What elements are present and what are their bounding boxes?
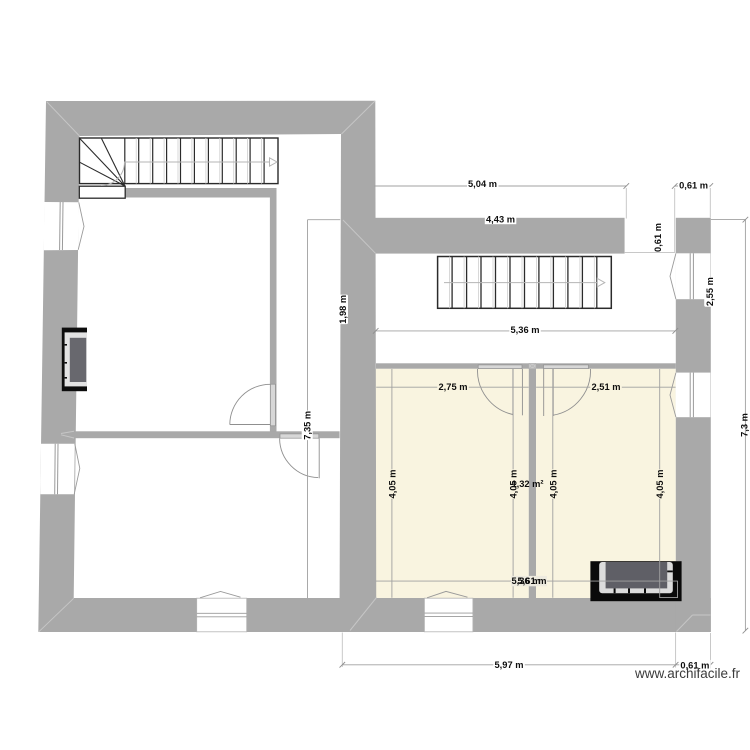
svg-text:7,35 m: 7,35 m bbox=[303, 411, 313, 440]
svg-text:4,05 m: 4,05 m bbox=[548, 470, 558, 499]
svg-text:5,61 m: 5,61 m bbox=[518, 576, 547, 586]
svg-text:1,98 m: 1,98 m bbox=[338, 295, 348, 324]
svg-text:2,55 m: 2,55 m bbox=[705, 277, 715, 306]
svg-text:7,3 m: 7,3 m bbox=[740, 413, 750, 437]
svg-text:4,05 m: 4,05 m bbox=[655, 470, 665, 499]
svg-text:2,75 m: 2,75 m bbox=[439, 382, 468, 392]
svg-text:2,51 m: 2,51 m bbox=[592, 382, 621, 392]
svg-text:5,36 m: 5,36 m bbox=[511, 325, 540, 335]
svg-text:0,61 m: 0,61 m bbox=[679, 180, 708, 190]
svg-text:1,32 m²: 1,32 m² bbox=[511, 479, 543, 489]
svg-text:5,97 m: 5,97 m bbox=[495, 660, 524, 670]
svg-text:4,05 m: 4,05 m bbox=[387, 470, 397, 499]
svg-text:0,61 m: 0,61 m bbox=[653, 223, 663, 252]
svg-text:4,43 m: 4,43 m bbox=[486, 214, 515, 224]
svg-text:5,04 m: 5,04 m bbox=[468, 179, 497, 189]
svg-text:www.archifacile.fr: www.archifacile.fr bbox=[634, 666, 741, 681]
